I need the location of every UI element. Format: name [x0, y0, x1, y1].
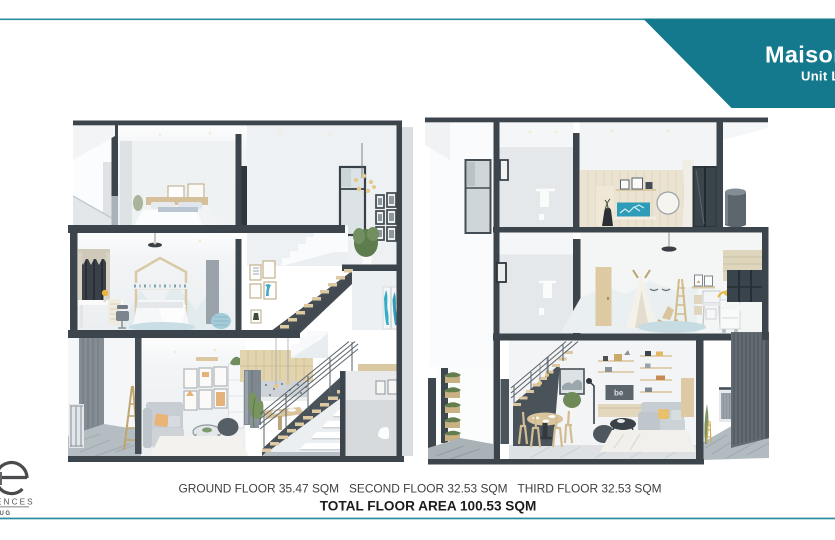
- svg-text:UG: UG: [0, 511, 12, 517]
- svg-text:Unit L: Unit L: [801, 69, 835, 84]
- svg-text:be: be: [614, 389, 624, 398]
- svg-text:ENCES: ENCES: [0, 498, 35, 507]
- svg-text:GROUND FLOOR 35.47 SQM SECON: GROUND FLOOR 35.47 SQM SECOND FLOOR 32.5…: [178, 482, 661, 496]
- svg-text:Maisonette: Maisonette: [765, 42, 835, 68]
- svg-text:TOTAL FLOOR AREA 100.53 SQM: TOTAL FLOOR AREA 100.53 SQM: [320, 499, 537, 514]
